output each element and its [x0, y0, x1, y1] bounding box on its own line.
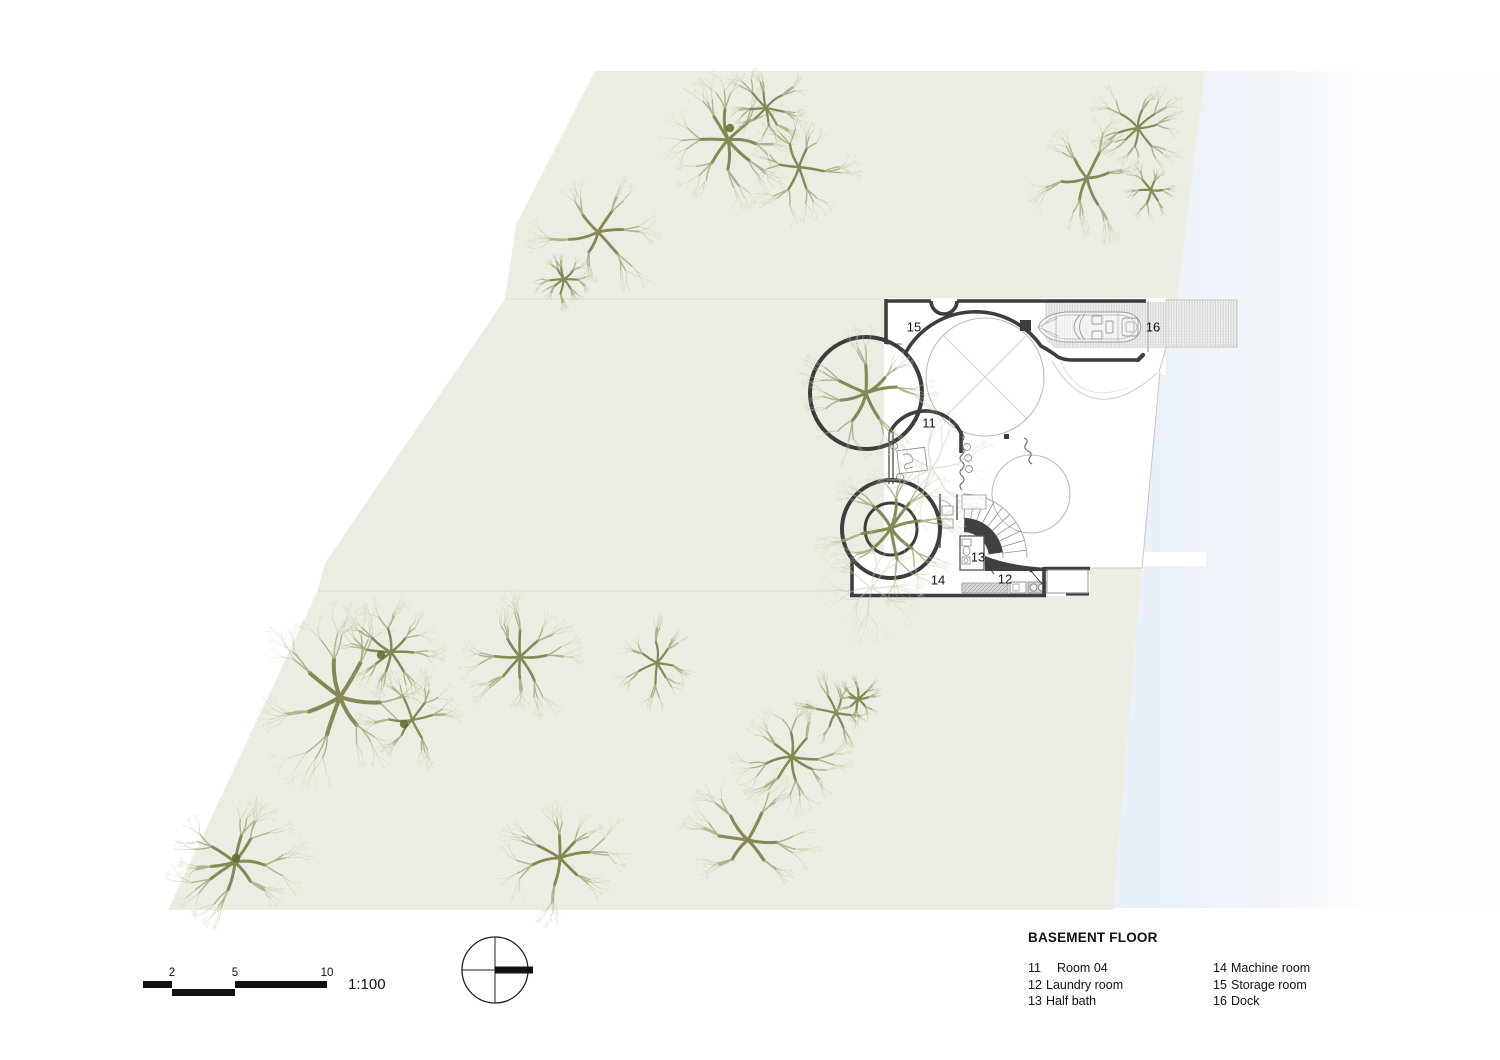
- legend-item-16: 16Dock: [1213, 993, 1310, 1010]
- legend-item-label: Machine room: [1231, 960, 1310, 977]
- legend-item-label: Half bath: [1046, 993, 1096, 1010]
- tree-trunk-dot: [377, 651, 385, 659]
- legend-item-number: 16: [1213, 993, 1231, 1010]
- tree-trunk-dot: [400, 720, 408, 728]
- room-label-15: 15: [907, 320, 921, 335]
- legend-columns: 11Room 0412Laundry room13Half bath14Mach…: [1028, 960, 1310, 1010]
- legend-column-2: 14Machine room15Storage room16Dock: [1213, 960, 1310, 1010]
- scale-tick-10: 10: [321, 967, 334, 979]
- north-indicator-icon: [462, 937, 533, 1003]
- legend-title: BASEMENT FLOOR: [1028, 930, 1310, 945]
- tree-trunk-dot: [726, 124, 734, 132]
- legend-item-label: Laundry room: [1046, 977, 1123, 994]
- room-label-12: 12: [998, 572, 1012, 587]
- basement-floor-plan: 151611131412 2510 1:100 BASEMENT FLOOR 1…: [0, 0, 1500, 1060]
- legend-item-12: 12Laundry room: [1028, 977, 1213, 994]
- boat-icon: [1038, 312, 1141, 342]
- tree-trunk-dot: [232, 854, 240, 862]
- scale-bar: [143, 981, 327, 996]
- scale-tick-2: 2: [169, 967, 175, 979]
- legend: BASEMENT FLOOR 11Room 0412Laundry room13…: [1028, 930, 1310, 1010]
- legend-item-label: Dock: [1231, 993, 1259, 1010]
- legend-item-13: 13Half bath: [1028, 993, 1213, 1010]
- legend-item-label: Room 04: [1057, 960, 1108, 977]
- scale-tick-5: 5: [232, 967, 238, 979]
- legend-item-number: 13: [1028, 993, 1046, 1010]
- room-label-16: 16: [1146, 320, 1160, 335]
- legend-item-number: 14: [1213, 960, 1231, 977]
- legend-item-11: 11Room 04: [1028, 960, 1213, 977]
- site-plan-drawing: [0, 0, 1500, 1060]
- legend-item-number: 11: [1028, 960, 1046, 977]
- room-label-14: 14: [931, 573, 945, 588]
- terrace-strip: [1048, 552, 1206, 566]
- scale-ratio-label: 1:100: [348, 976, 386, 993]
- legend-item-number: 15: [1213, 977, 1231, 994]
- room-label-13: 13: [971, 550, 985, 565]
- legend-item-15: 15Storage room: [1213, 977, 1310, 994]
- room-label-11: 11: [922, 416, 936, 431]
- legend-item-number: 12: [1028, 977, 1046, 994]
- legend-column-1: 11Room 0412Laundry room13Half bath: [1028, 960, 1213, 1010]
- legend-item-label: Storage room: [1231, 977, 1307, 994]
- legend-item-14: 14Machine room: [1213, 960, 1310, 977]
